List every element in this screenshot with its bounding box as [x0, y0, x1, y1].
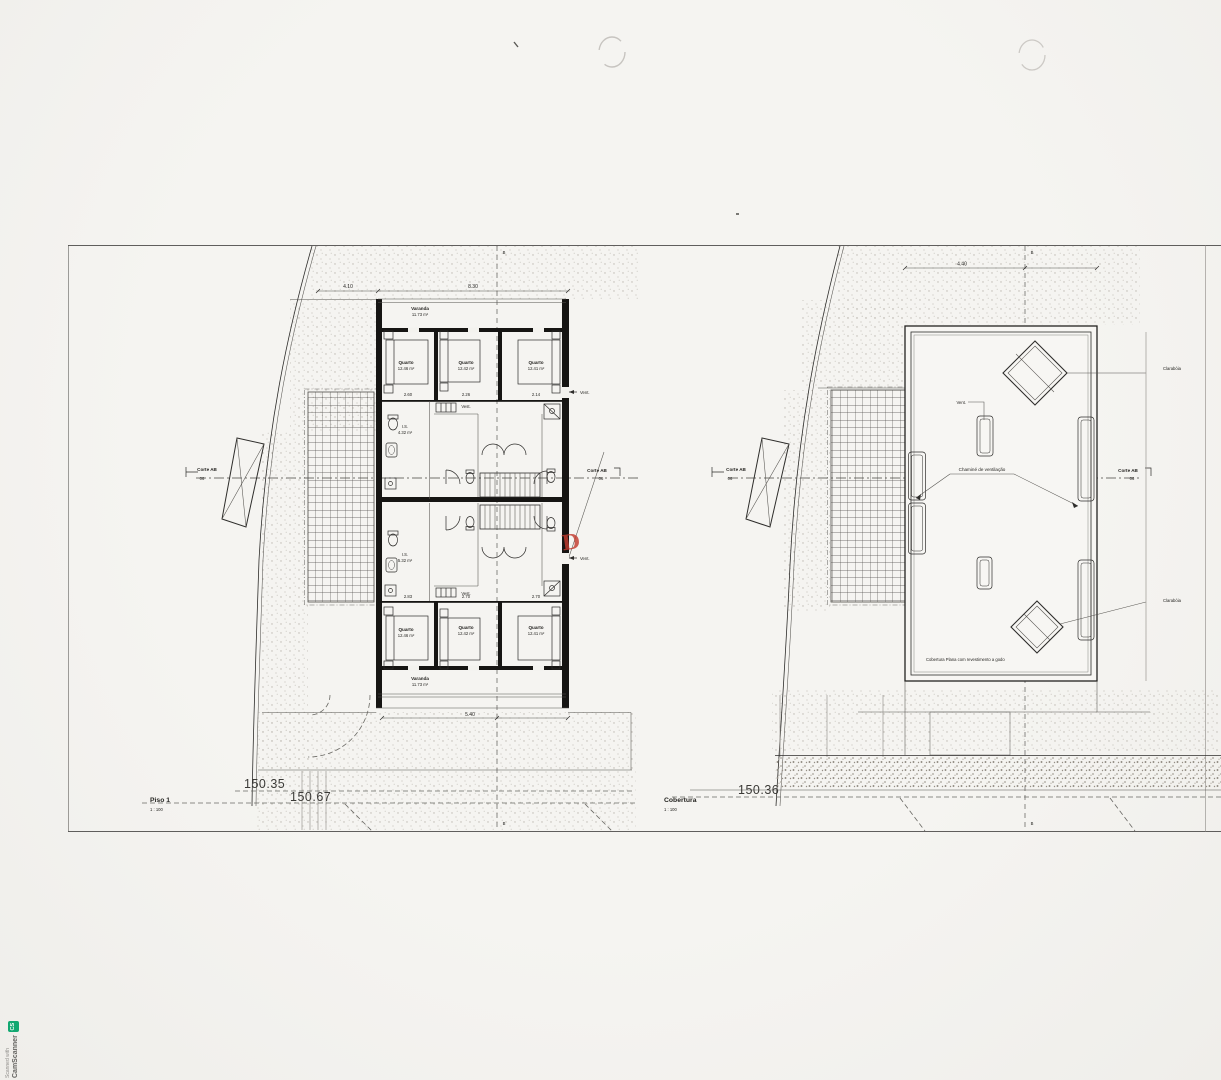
svg-text:12.42 m²: 12.42 m²: [458, 366, 475, 371]
roof-slab-outline: [905, 326, 1097, 681]
svg-text:2.26: 2.26: [462, 392, 471, 397]
bed-symbol: [518, 607, 560, 669]
bathroom-fixtures: [385, 516, 560, 597]
room-label: Varanda: [411, 676, 429, 681]
room-labels: Varanda 11.73 m² Quarto 12.46 m² Quarto …: [398, 306, 545, 687]
axis-marker-bottom: B: [1031, 821, 1034, 826]
svg-text:12.41 m²: 12.41 m²: [528, 631, 545, 636]
svg-text:12.42 m²: 12.42 m²: [458, 631, 475, 636]
pergola-grid: [828, 387, 909, 605]
gravel-band: [775, 757, 1221, 789]
room-label: Vest.: [461, 404, 470, 409]
skylight-label: Clarabóia: [1163, 598, 1182, 603]
stair-flight-upper: [480, 473, 540, 497]
svg-text:2.14: 2.14: [532, 392, 541, 397]
chimney-annotation: Chaminé de ventilação: [959, 467, 1006, 472]
scan-artifacts: [514, 37, 1045, 214]
svg-text:06: 06: [200, 476, 205, 481]
bathroom-fixtures: [385, 403, 560, 489]
red-stamp-letter: D: [560, 528, 582, 555]
camscanner-text: Scanned with CamScanner: [6, 1035, 20, 1078]
svg-text:11.73 m²: 11.73 m²: [412, 312, 429, 317]
svg-text:12.46 m²: 12.46 m²: [398, 633, 415, 638]
camscanner-icon: CS: [8, 1021, 19, 1032]
skylight-label: Clarabóia: [1163, 366, 1182, 371]
svg-text:Corte AB: Corte AB: [197, 467, 217, 472]
room-label: Quarto: [528, 360, 543, 365]
vent-arrow-top: Vent.: [569, 390, 590, 395]
svg-text:11.73 m²: 11.73 m²: [412, 682, 429, 687]
pergola-grid: [305, 389, 377, 605]
elevation-value: 150.67: [290, 790, 331, 804]
axis-marker-bottom: B: [503, 821, 506, 826]
svg-text:Corte AB: Corte AB: [726, 467, 746, 472]
vent-arrow-bottom: Vent.: [569, 556, 590, 561]
plan-title-piso1: Piso 1 1 : 100: [150, 797, 170, 812]
svg-text:Corte AB: Corte AB: [1118, 468, 1138, 473]
bed-symbol: [440, 609, 480, 669]
bed-symbol: [384, 607, 428, 669]
svg-text:12.46 m²: 12.46 m²: [398, 366, 415, 371]
floor-plan-piso1: B B Corte AB 06 Corte AB 06: [142, 246, 640, 831]
plan-title-cobertura: Cobertura 1 : 100: [664, 797, 697, 812]
hole-punch-mark: [1019, 40, 1045, 70]
room-label: Quarto: [528, 625, 543, 630]
svg-text:06: 06: [1130, 476, 1135, 481]
svg-text:4.32 m²: 4.32 m²: [398, 430, 413, 435]
svg-text:Vent.: Vent.: [580, 390, 590, 395]
flat-roof-annotation: Cobertura Plana com revestimento a godo: [926, 657, 1005, 662]
watermark-brand: CamScanner: [12, 1035, 20, 1078]
section-marker-crossed-box: [222, 438, 264, 527]
svg-text:2.70: 2.70: [462, 594, 471, 599]
corte-ab-label-left: Corte AB 06: [712, 467, 747, 481]
roof-plan-cobertura: B B Corte AB 06 Corte AB 06: [664, 246, 1221, 831]
plan-scale: 1 : 100: [664, 807, 677, 812]
svg-text:2.70: 2.70: [532, 594, 541, 599]
room-label: Quarto: [398, 360, 413, 365]
axis-marker-top: B: [1031, 250, 1034, 255]
svg-text:2.83: 2.83: [404, 594, 413, 599]
elevation-value: 150.36: [738, 783, 779, 797]
hole-punch-mark: [599, 37, 625, 67]
room-label: Quarto: [458, 360, 473, 365]
svg-text:2.60: 2.60: [404, 392, 413, 397]
camscanner-watermark: Scanned with CamScanner CS: [3, 1018, 23, 1078]
svg-text:12.41 m²: 12.41 m²: [528, 366, 545, 371]
drawing-canvas: B B Corte AB 06 Corte AB 06: [0, 0, 1221, 1080]
svg-text:8.30: 8.30: [468, 284, 478, 290]
room-label: Quarto: [398, 627, 413, 632]
svg-text:Vent.: Vent.: [580, 556, 590, 561]
room-label: I.S.: [402, 552, 408, 557]
plan-title: Cobertura: [664, 797, 697, 804]
room-label: Varanda: [411, 306, 429, 311]
room-label: I.S.: [402, 424, 408, 429]
scanned-drawing-sheet: B B Corte AB 06 Corte AB 06: [0, 0, 1221, 1080]
room-label: Quarto: [458, 625, 473, 630]
axis-marker-top: B: [503, 250, 506, 255]
plan-scale: 1 : 100: [150, 807, 163, 812]
svg-text:06: 06: [728, 476, 733, 481]
stair-flight-lower: [480, 505, 540, 529]
svg-text:5.32 m²: 5.32 m²: [398, 558, 413, 563]
svg-text:4.40: 4.40: [957, 262, 967, 268]
svg-text:4.10: 4.10: [343, 284, 353, 290]
plan-title: Piso 1: [150, 797, 170, 804]
elevation-value: 150.35: [244, 777, 285, 791]
svg-text:06: 06: [599, 476, 604, 481]
pen-speck: [514, 42, 518, 47]
corte-ab-label-left: Corte AB 06: [186, 467, 218, 481]
vent-label: Vent.: [956, 400, 966, 405]
svg-text:5.40: 5.40: [465, 712, 475, 718]
